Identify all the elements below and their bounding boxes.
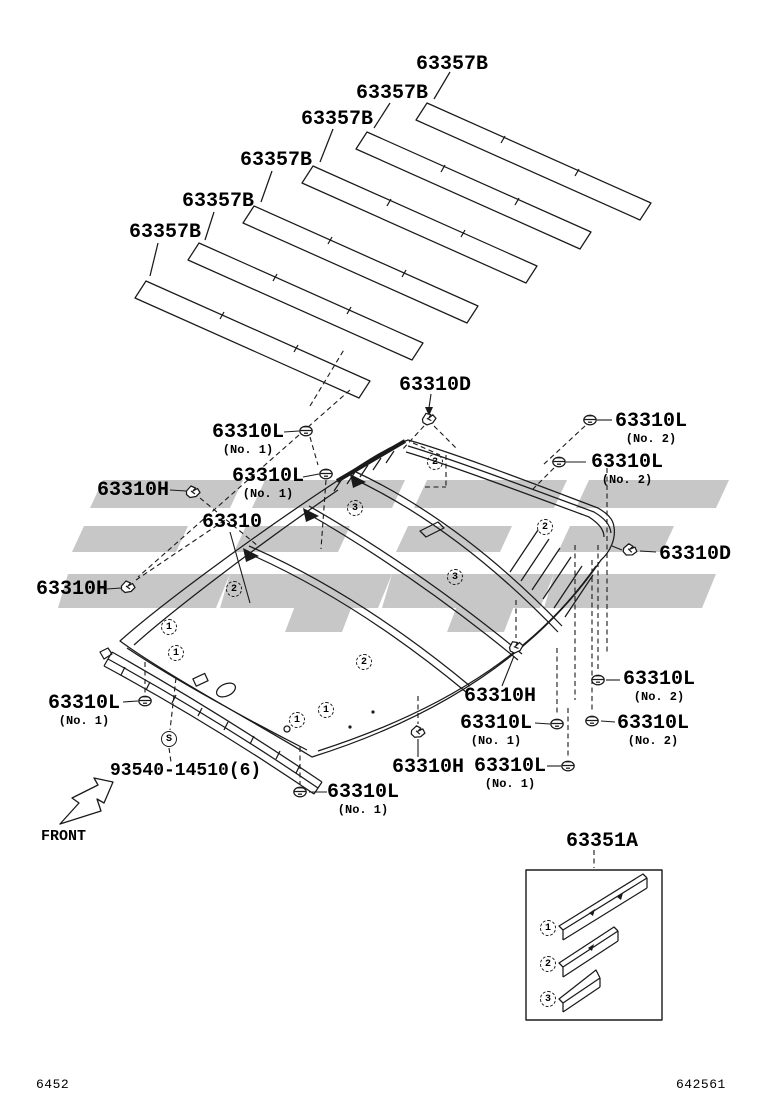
page-code-left: 6452 (36, 1078, 69, 1091)
callout-1: 1 (161, 619, 177, 635)
part-label-63310H-a[interactable]: 63310H (97, 481, 169, 501)
part-label-93540[interactable]: 93540-14510(6) (110, 762, 261, 780)
part-label-63310H-d[interactable]: 63310H (392, 758, 464, 778)
inset-callout-2: 2 (540, 956, 556, 972)
part-label-63310L-no1-d[interactable]: 63310L(No. 1) (460, 714, 532, 749)
part-label-63357B-1[interactable]: 63357B (416, 55, 488, 75)
part-label-63310L-no2-c[interactable]: 63310L(No. 2) (623, 670, 695, 705)
front-arrow-icon (60, 778, 113, 824)
part-label-63357B-5[interactable]: 63357B (182, 192, 254, 212)
part-label-63310[interactable]: 63310 (202, 513, 262, 533)
callout-2: 2 (537, 519, 553, 535)
part-label-63310H-b[interactable]: 63310H (36, 580, 108, 600)
part-label-63357B-2[interactable]: 63357B (356, 84, 428, 104)
diagram-canvas (0, 0, 760, 1112)
front-label: FRONT (41, 829, 86, 844)
part-label-63310D-top[interactable]: 63310D (399, 376, 471, 396)
page-code-right: 642561 (676, 1078, 726, 1091)
roof-silencer-strips (135, 72, 651, 398)
part-label-63310D-right[interactable]: 63310D (659, 545, 731, 565)
part-label-63310L-no1-c[interactable]: 63310L(No. 1) (48, 694, 120, 729)
part-label-63357B-3[interactable]: 63357B (301, 110, 373, 130)
callout-2: 2 (226, 581, 242, 597)
callout-2: 2 (356, 654, 372, 670)
part-label-63357B-6[interactable]: 63357B (129, 223, 201, 243)
part-label-63310L-no1-b[interactable]: 63310L(No. 1) (232, 467, 304, 502)
part-label-63310L-no1-f[interactable]: 63310L(No. 1) (327, 783, 399, 818)
callout-1: 1 (289, 712, 305, 728)
callout-1: 1 (318, 702, 334, 718)
part-label-63310H-c[interactable]: 63310H (464, 687, 536, 707)
part-label-63310L-no2-b[interactable]: 63310L(No. 2) (591, 453, 663, 488)
part-label-63351A[interactable]: 63351A (566, 832, 638, 852)
callout-3: 3 (447, 569, 463, 585)
inset-callout-1: 1 (540, 920, 556, 936)
part-label-63310L-no2-d[interactable]: 63310L(No. 2) (617, 714, 689, 749)
part-label-63310L-no1-a[interactable]: 63310L(No. 1) (212, 423, 284, 458)
inset-callout-3: 3 (540, 991, 556, 1007)
part-label-63310L-no1-e[interactable]: 63310L(No. 1) (474, 757, 546, 792)
part-label-63310L-no2-a[interactable]: 63310L(No. 2) (615, 412, 687, 447)
callout-2: 2 (427, 454, 443, 470)
parts-diagram-page: 63357B 63357B 63357B 63357B 63357B 63357… (0, 0, 760, 1112)
part-label-63357B-4[interactable]: 63357B (240, 151, 312, 171)
callout-3: 3 (347, 500, 363, 516)
callout-1: 1 (168, 645, 184, 661)
s-fastener-symbol: S (161, 731, 177, 747)
